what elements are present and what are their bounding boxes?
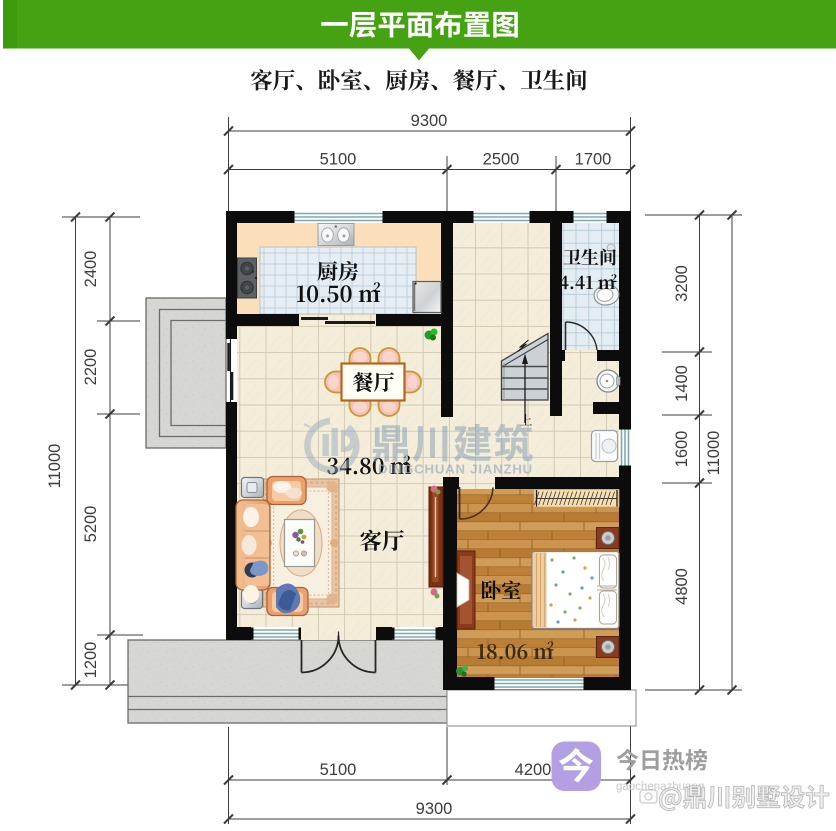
svg-text:3200: 3200 bbox=[673, 265, 691, 302]
svg-text:11000: 11000 bbox=[46, 444, 64, 489]
svg-text:1600: 1600 bbox=[673, 431, 691, 468]
svg-text:9300: 9300 bbox=[411, 112, 448, 130]
svg-text:DINGCHUAN JIANZHU: DINGCHUAN JIANZHU bbox=[378, 462, 533, 477]
svg-text:11000: 11000 bbox=[705, 431, 723, 476]
svg-text:5200: 5200 bbox=[82, 506, 100, 543]
svg-text:1400: 1400 bbox=[673, 365, 691, 402]
svg-text:2500: 2500 bbox=[483, 151, 520, 169]
svg-text:5100: 5100 bbox=[320, 761, 357, 779]
svg-text:5100: 5100 bbox=[320, 151, 357, 169]
svg-text:9300: 9300 bbox=[416, 800, 453, 818]
svg-text:1700: 1700 bbox=[575, 151, 612, 169]
svg-text:1200: 1200 bbox=[82, 642, 100, 679]
svg-text:4200: 4200 bbox=[515, 761, 552, 779]
svg-text:2400: 2400 bbox=[82, 251, 100, 288]
svg-text:4800: 4800 bbox=[673, 568, 691, 605]
svg-text:2200: 2200 bbox=[82, 349, 100, 386]
